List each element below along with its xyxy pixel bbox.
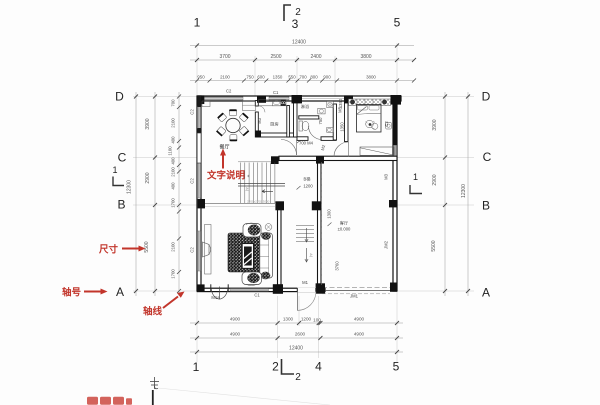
svg-text:轴号: 轴号 bbox=[62, 287, 82, 299]
svg-text:1: 1 bbox=[413, 172, 418, 182]
svg-text:3700: 3700 bbox=[219, 54, 230, 60]
svg-text:D: D bbox=[115, 90, 124, 104]
svg-text:4900: 4900 bbox=[230, 317, 241, 322]
svg-text:700: 700 bbox=[299, 75, 307, 80]
svg-text:2: 2 bbox=[272, 360, 279, 374]
svg-text:4900: 4900 bbox=[354, 317, 365, 322]
svg-text:750: 750 bbox=[246, 75, 254, 80]
svg-text:100: 100 bbox=[313, 318, 321, 323]
svg-text:900: 900 bbox=[323, 75, 331, 80]
svg-text:1: 1 bbox=[193, 360, 200, 374]
svg-text:D: D bbox=[482, 90, 491, 104]
svg-text:2900: 2900 bbox=[432, 174, 438, 185]
svg-text:1350: 1350 bbox=[338, 98, 343, 108]
svg-text:2400: 2400 bbox=[310, 54, 321, 60]
svg-text:A: A bbox=[482, 286, 490, 300]
svg-text:A: A bbox=[116, 285, 124, 299]
svg-text:B: B bbox=[117, 198, 125, 212]
svg-text:3: 3 bbox=[292, 17, 299, 31]
svg-text:400: 400 bbox=[171, 136, 176, 144]
svg-text:M3: M3 bbox=[257, 117, 262, 123]
svg-text:C: C bbox=[118, 151, 127, 165]
svg-text:12400: 12400 bbox=[289, 346, 303, 352]
svg-text:M3: M3 bbox=[384, 173, 389, 179]
svg-text:1200: 1200 bbox=[303, 184, 313, 189]
svg-text:1: 1 bbox=[194, 16, 201, 30]
svg-text:400: 400 bbox=[171, 157, 176, 165]
svg-text:1200: 1200 bbox=[301, 317, 312, 322]
svg-text:800: 800 bbox=[310, 75, 318, 80]
svg-text:1100: 1100 bbox=[168, 146, 173, 156]
svg-text:C2: C2 bbox=[226, 89, 232, 94]
svg-text:C1: C1 bbox=[254, 293, 260, 298]
svg-text:C2: C2 bbox=[190, 178, 195, 184]
svg-text:5500: 5500 bbox=[144, 241, 150, 252]
svg-text:JM1: JM1 bbox=[350, 294, 359, 299]
svg-text:2: 2 bbox=[295, 7, 301, 18]
svg-text:2600: 2600 bbox=[295, 332, 306, 337]
svg-text:3800: 3800 bbox=[360, 54, 371, 60]
svg-text:M1: M1 bbox=[302, 280, 308, 285]
svg-text:C2: C2 bbox=[190, 109, 195, 115]
svg-text:4: 4 bbox=[315, 360, 322, 374]
svg-text:3760: 3760 bbox=[335, 261, 340, 271]
svg-text:5: 5 bbox=[394, 16, 401, 30]
svg-text:12400: 12400 bbox=[292, 40, 306, 46]
svg-text:1350: 1350 bbox=[273, 75, 283, 80]
svg-text:4900: 4900 bbox=[354, 332, 365, 337]
svg-text:1350: 1350 bbox=[340, 122, 345, 132]
svg-text:M2: M2 bbox=[320, 144, 327, 152]
svg-text:C2: C2 bbox=[384, 121, 389, 127]
svg-text:±0.000: ±0.000 bbox=[338, 227, 351, 232]
svg-text:轴线: 轴线 bbox=[143, 306, 163, 318]
svg-text:2500: 2500 bbox=[270, 54, 281, 60]
svg-text:C2: C2 bbox=[190, 247, 195, 253]
svg-text:厨房: 厨房 bbox=[270, 121, 278, 128]
svg-text:2700x2700 3000: 2700x2700 3000 bbox=[247, 200, 270, 204]
svg-text:淋浴: 淋浴 bbox=[301, 103, 310, 110]
svg-text:尺寸: 尺寸 bbox=[99, 244, 119, 256]
svg-text:3900: 3900 bbox=[432, 119, 438, 130]
svg-text:餐厅: 餐厅 bbox=[220, 144, 230, 151]
svg-text:12300: 12300 bbox=[127, 180, 133, 194]
svg-text:600: 600 bbox=[257, 75, 265, 80]
svg-text:700: 700 bbox=[171, 99, 176, 107]
svg-text:B梯: B梯 bbox=[304, 176, 311, 183]
svg-text:750: 750 bbox=[318, 117, 323, 125]
svg-text:12300: 12300 bbox=[461, 184, 467, 198]
svg-text:2: 2 bbox=[295, 372, 301, 383]
svg-text:950: 950 bbox=[197, 75, 205, 80]
svg-text:1700: 1700 bbox=[171, 198, 176, 208]
svg-text:上: 上 bbox=[309, 252, 313, 257]
svg-text:1700: 1700 bbox=[171, 269, 176, 279]
svg-text:1300: 1300 bbox=[283, 317, 294, 322]
svg-text:2100: 2100 bbox=[171, 118, 176, 128]
svg-text:M1a: M1a bbox=[211, 295, 220, 300]
svg-text:B: B bbox=[482, 199, 490, 213]
svg-text:客厅: 客厅 bbox=[340, 220, 348, 227]
svg-text:550: 550 bbox=[288, 75, 296, 80]
svg-text:C: C bbox=[483, 150, 492, 164]
svg-text:700 M4: 700 M4 bbox=[299, 141, 314, 146]
svg-text:JM2: JM2 bbox=[384, 240, 389, 249]
svg-text:2900: 2900 bbox=[145, 172, 151, 183]
svg-text:上: 上 bbox=[245, 186, 249, 191]
svg-text:1: 1 bbox=[113, 165, 118, 175]
svg-text:5500: 5500 bbox=[431, 240, 437, 251]
svg-text:5: 5 bbox=[393, 360, 400, 374]
svg-text:3800: 3800 bbox=[366, 75, 376, 80]
svg-text:2100: 2100 bbox=[171, 167, 176, 177]
svg-text:2100: 2100 bbox=[171, 242, 176, 252]
svg-text:文字说明: 文字说明 bbox=[206, 170, 246, 182]
svg-text:C1: C1 bbox=[273, 90, 279, 95]
svg-text:4900: 4900 bbox=[230, 332, 241, 337]
svg-text:3900: 3900 bbox=[145, 118, 151, 129]
svg-text:1300: 1300 bbox=[327, 209, 332, 219]
svg-text:400: 400 bbox=[171, 182, 176, 190]
svg-text:2100: 2100 bbox=[220, 75, 230, 80]
